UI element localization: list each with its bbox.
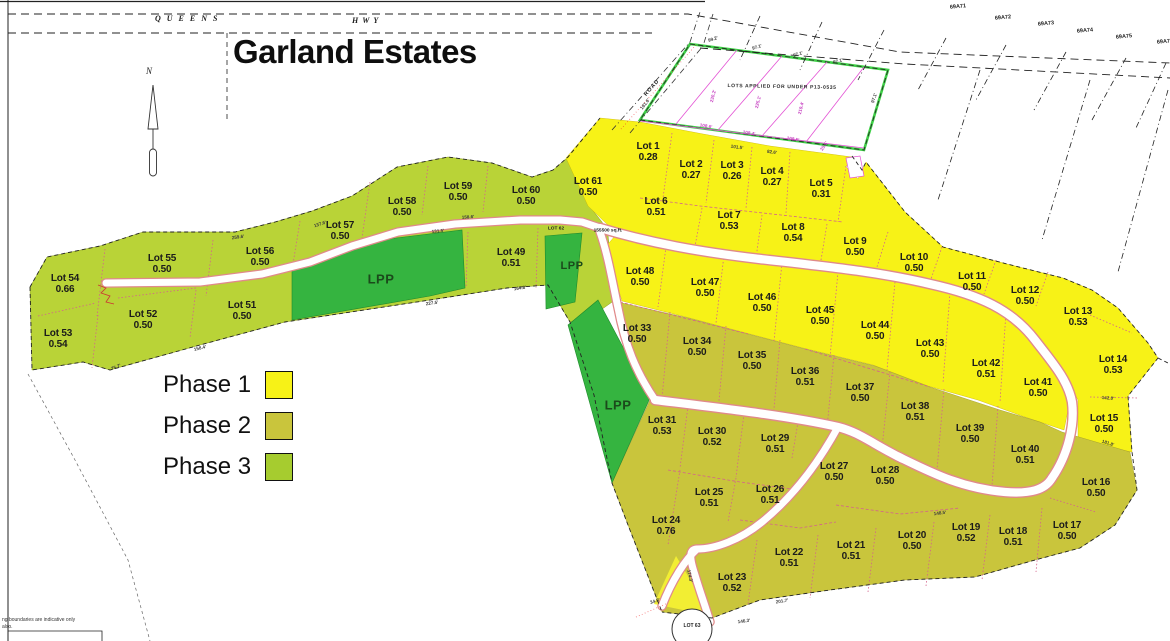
offsite-boundary	[28, 374, 150, 641]
north-arrow	[148, 85, 158, 176]
plat-map-graphics	[0, 0, 1170, 641]
plat-map-stage: Garland Estates QUEENS HWY N LOTS APPLIE…	[0, 0, 1170, 641]
